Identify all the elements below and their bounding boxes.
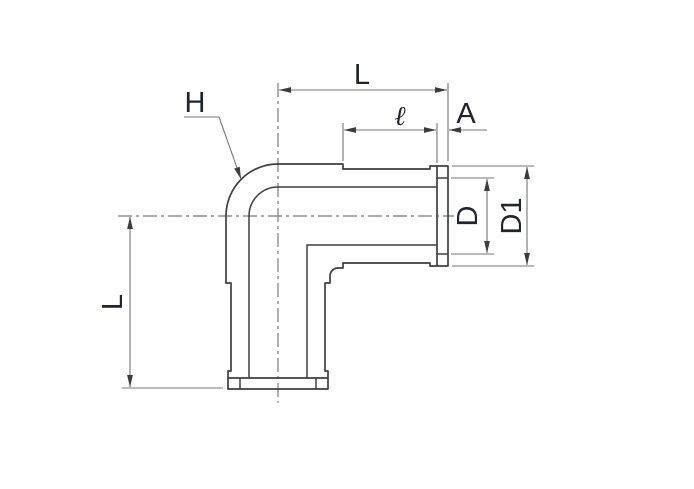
elbow-outer-contour xyxy=(226,164,448,389)
dimension-lines xyxy=(130,90,527,387)
label-flange-od: D1 xyxy=(496,197,528,234)
dimension-labels: L H ℓ A D D1 L xyxy=(97,59,528,310)
label-socket-length: ℓ xyxy=(394,101,406,132)
label-tube-diameter: D xyxy=(452,206,484,227)
label-length-vertical: L xyxy=(97,294,129,310)
elbow-body xyxy=(226,164,448,389)
drawing-canvas: L H ℓ A D D1 L xyxy=(0,0,694,489)
elbow-fitting-drawing: L H ℓ A D D1 L xyxy=(0,0,694,489)
bore-inner-wall xyxy=(307,245,437,378)
label-flange-thickness: A xyxy=(456,98,476,130)
label-bend-reference: H xyxy=(185,87,206,119)
h-leader-line xyxy=(184,117,241,179)
label-length-horizontal: L xyxy=(354,59,370,91)
